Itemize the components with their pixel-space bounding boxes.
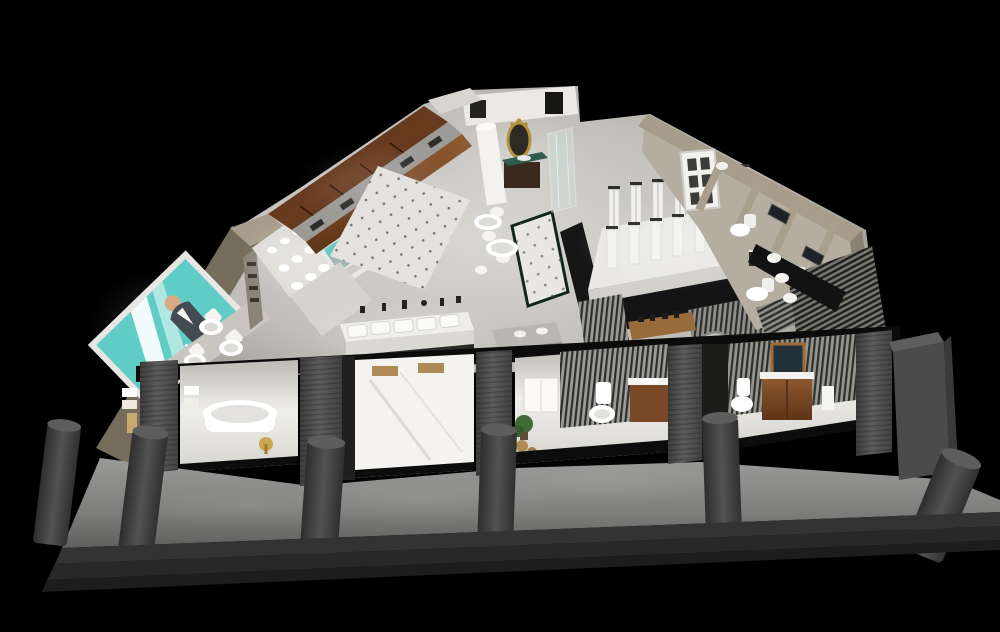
showroom-screenshot: AGGILA <box>0 0 1000 632</box>
louvre-slot <box>250 298 259 302</box>
bay-wood-vanity <box>628 378 670 422</box>
storefront-pillar <box>856 330 892 456</box>
hanging-robe <box>822 386 834 410</box>
bay-wood-vanity <box>760 372 814 420</box>
ornate-gold-mirror <box>508 119 530 158</box>
doorway-dark <box>545 92 563 114</box>
bay-bathtub <box>203 400 277 432</box>
bay-mirror <box>772 344 804 374</box>
towel-stack <box>184 386 199 395</box>
display-bathtub <box>474 214 502 230</box>
showroom-render: AGGILA <box>0 0 1000 632</box>
room-sink <box>716 162 728 170</box>
display-bay-open-floor <box>342 354 474 480</box>
wood-stool-base <box>372 366 398 376</box>
wood-stump-stool <box>516 440 528 452</box>
display-bay-bathtub <box>180 360 298 472</box>
side-table-basin <box>514 331 526 338</box>
bay-white-cabinet <box>524 378 558 412</box>
side-table-basin <box>536 328 548 335</box>
towel-stack <box>184 398 199 407</box>
storefront-pillar <box>668 344 702 464</box>
louvre-slot <box>249 286 258 290</box>
alcove-towel <box>122 388 137 397</box>
wood-stool-base <box>418 363 444 373</box>
display-bay-wood-vanity <box>728 334 856 450</box>
glass-shower-cabin <box>548 128 576 212</box>
display-bathtub <box>486 239 518 257</box>
display-bay-vanity-toilet <box>512 344 670 464</box>
bollard <box>702 411 742 536</box>
alcove-towel <box>122 400 137 409</box>
